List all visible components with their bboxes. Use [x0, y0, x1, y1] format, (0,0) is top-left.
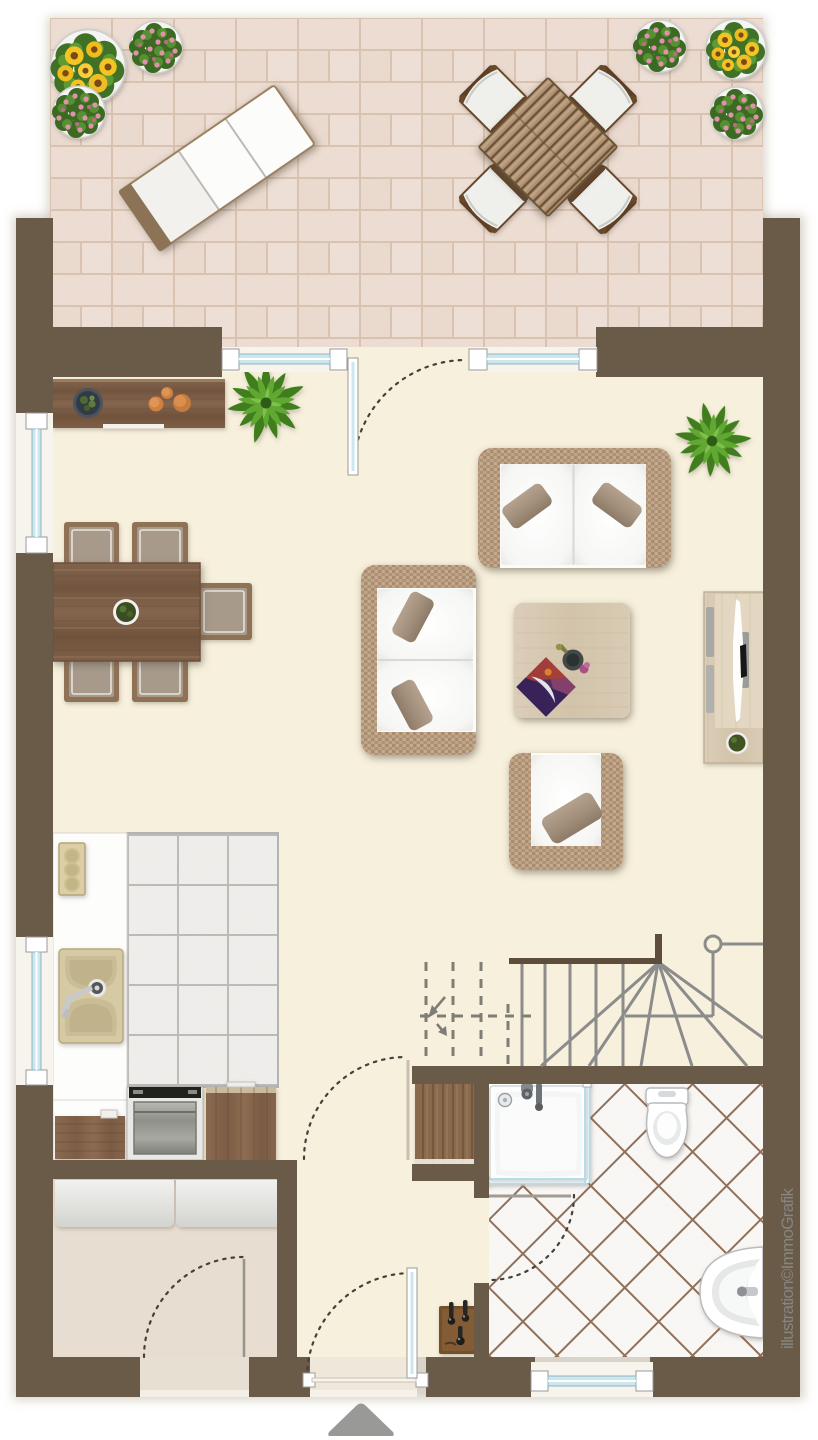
svg-text:illustration©ImmoGrafik: illustration©ImmoGrafik [778, 1188, 797, 1350]
